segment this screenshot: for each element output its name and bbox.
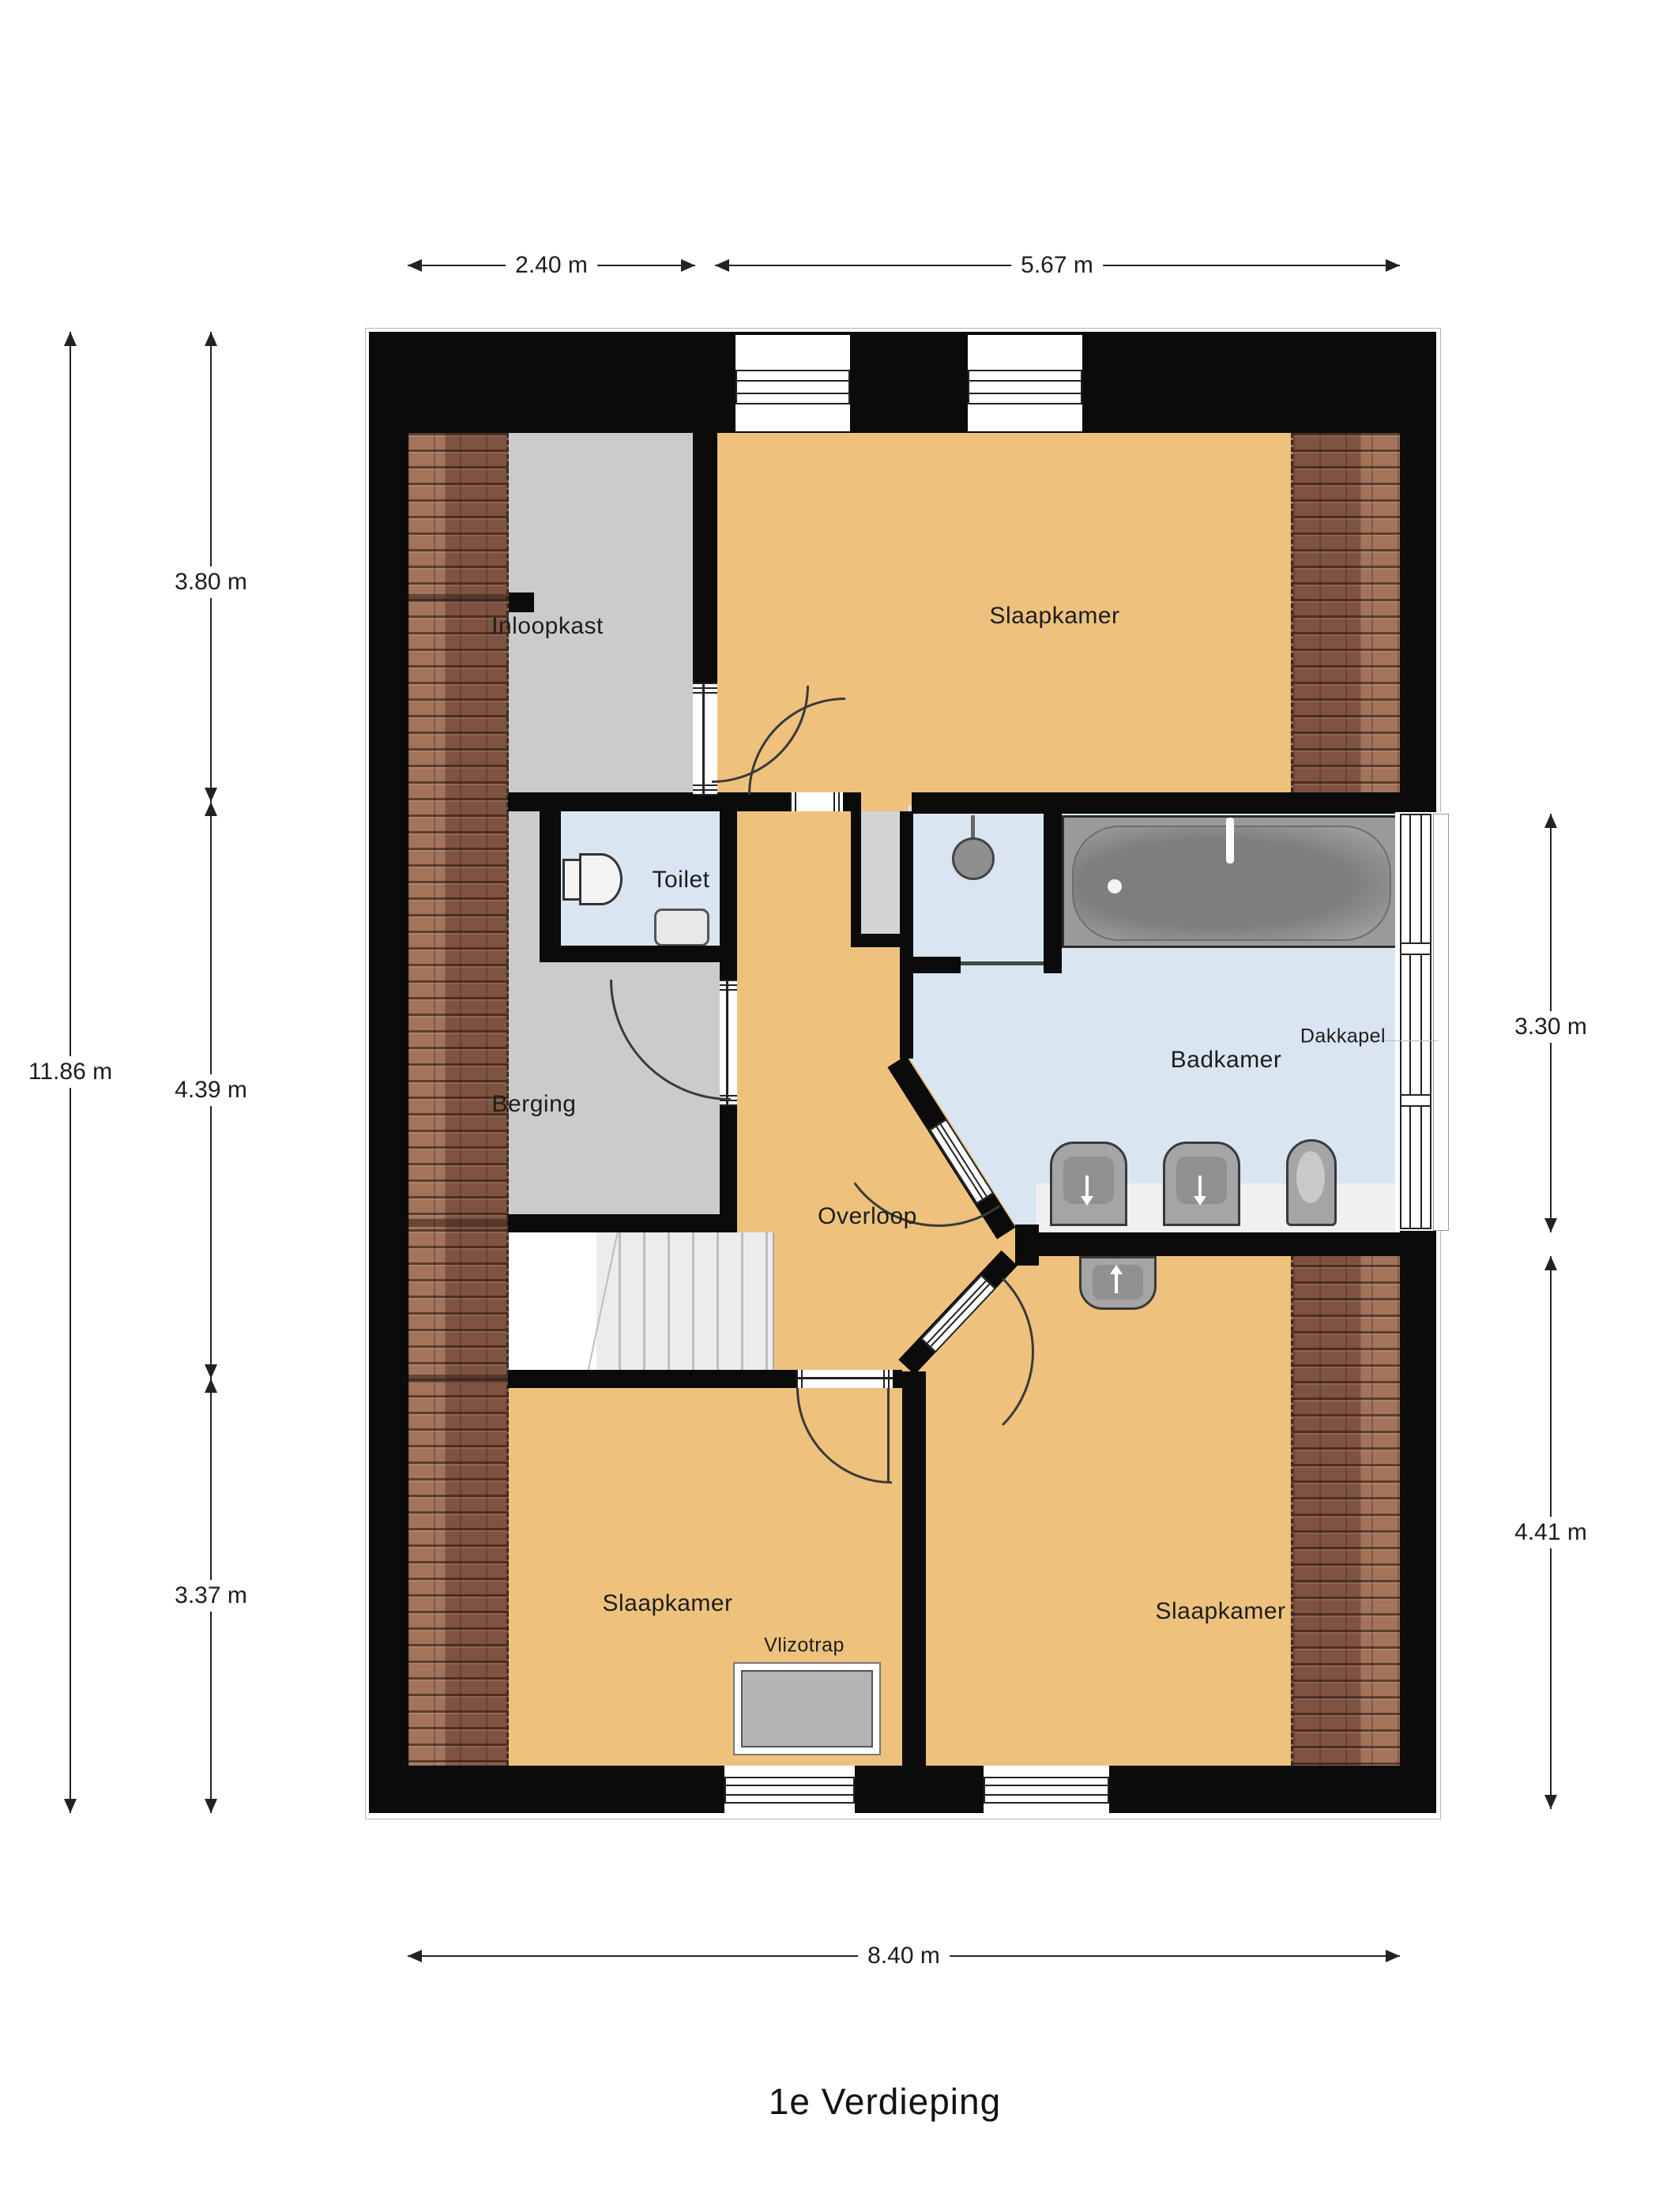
dim-label-total-width: 8.40 m <box>858 1940 950 1972</box>
dakkapel-mullion <box>1400 942 1431 955</box>
window-top-1 <box>735 370 850 404</box>
wall-toilet-left <box>540 811 561 946</box>
stairs-landing <box>510 1232 596 1371</box>
dim-label-total-height: 11.86 m <box>19 1056 122 1088</box>
door-jamb <box>693 784 717 796</box>
wall-top-band <box>369 332 1436 433</box>
shower-head-icon <box>952 837 995 880</box>
window-bottom-1 <box>724 1777 855 1804</box>
wall-shower-right <box>1044 811 1062 973</box>
window-top-2 <box>968 370 1082 404</box>
toilet-bowl <box>579 853 623 905</box>
roof-seam-left-2 <box>408 1219 509 1227</box>
wall-toilet-bottom <box>540 946 737 962</box>
sink-slaapkamer-br <box>1079 1256 1157 1310</box>
roof-seam-left-1 <box>408 594 509 602</box>
toilet-sink <box>654 908 709 946</box>
stairs <box>596 1232 774 1371</box>
dim-label-left-middle: 4.39 m <box>165 1074 257 1106</box>
dim-label-left-top: 3.80 m <box>165 566 257 598</box>
room-label-slaapkamer-bl: Slaapkamer <box>602 1590 732 1617</box>
dim-label-top-right: 5.67 m <box>1011 250 1103 281</box>
floorplan-canvas: Inloopkast Slaapkamer Toilet Berging Ove… <box>0 0 1659 2212</box>
bathtub-drain <box>1108 879 1122 893</box>
door-frame-line <box>796 1377 893 1379</box>
dim-label-left-bottom: 3.37 m <box>165 1580 257 1612</box>
toilet-badkamer <box>1286 1139 1337 1226</box>
wall-berging-bottom <box>508 1214 737 1232</box>
dakkapel-outer-line <box>1433 814 1449 1231</box>
room-label-inloopkast: Inloopkast <box>491 613 604 640</box>
roof-seam-left-3 <box>408 1375 509 1382</box>
door-jamb <box>833 792 843 811</box>
room-label-toilet: Toilet <box>652 867 709 893</box>
wall-duct-bottom <box>851 934 913 947</box>
room-label-berging: Berging <box>492 1091 577 1118</box>
room-label-dakkapel: Dakkapel <box>1300 1025 1386 1048</box>
dakkapel-mullion <box>1400 1094 1431 1107</box>
wall-stub-inloopkast <box>509 592 534 612</box>
room-label-vlizotrap: Vlizotrap <box>764 1635 845 1657</box>
vlizotrap-hatch <box>733 1662 881 1755</box>
wall-shower-stub <box>913 957 961 973</box>
room-label-slaapkamer-br: Slaapkamer <box>1155 1598 1285 1625</box>
page-title: 1e Verdieping <box>769 2080 1001 2123</box>
wall-bedrooms-divider <box>902 1371 926 1766</box>
sink-badkamer-2 <box>1163 1142 1240 1226</box>
window-bottom-2 <box>984 1777 1109 1804</box>
door-frame-line <box>702 683 705 796</box>
duct <box>861 811 900 934</box>
bathtub-faucet <box>1226 818 1234 863</box>
dim-label-top-left: 2.40 m <box>506 250 597 281</box>
dim-label-right-bottom: 4.41 m <box>1505 1517 1597 1548</box>
room-label-badkamer: Badkamer <box>1171 1047 1282 1074</box>
room-label-slaapkamer-top: Slaapkamer <box>989 603 1119 630</box>
roof-slope-right-bottom <box>1291 1248 1402 1766</box>
wall-badkamer-bottom <box>1015 1232 1400 1256</box>
wall-badkamer-bottom-corner <box>1015 1224 1039 1266</box>
wall-left <box>369 332 408 1813</box>
bathtub <box>1062 815 1398 948</box>
wall-bottom <box>369 1766 1436 1813</box>
wall-badkamer-top <box>912 792 1400 814</box>
roof-slope-right-top <box>1291 433 1402 814</box>
sink-badkamer-1 <box>1050 1142 1127 1226</box>
door-jamb <box>790 792 799 811</box>
wall-duct-left <box>851 811 861 947</box>
dim-label-right-top: 3.30 m <box>1505 1011 1597 1043</box>
window-dakkapel <box>1400 814 1431 1229</box>
shower-glass <box>961 961 1044 965</box>
room-label-overloop: Overloop <box>818 1203 917 1230</box>
